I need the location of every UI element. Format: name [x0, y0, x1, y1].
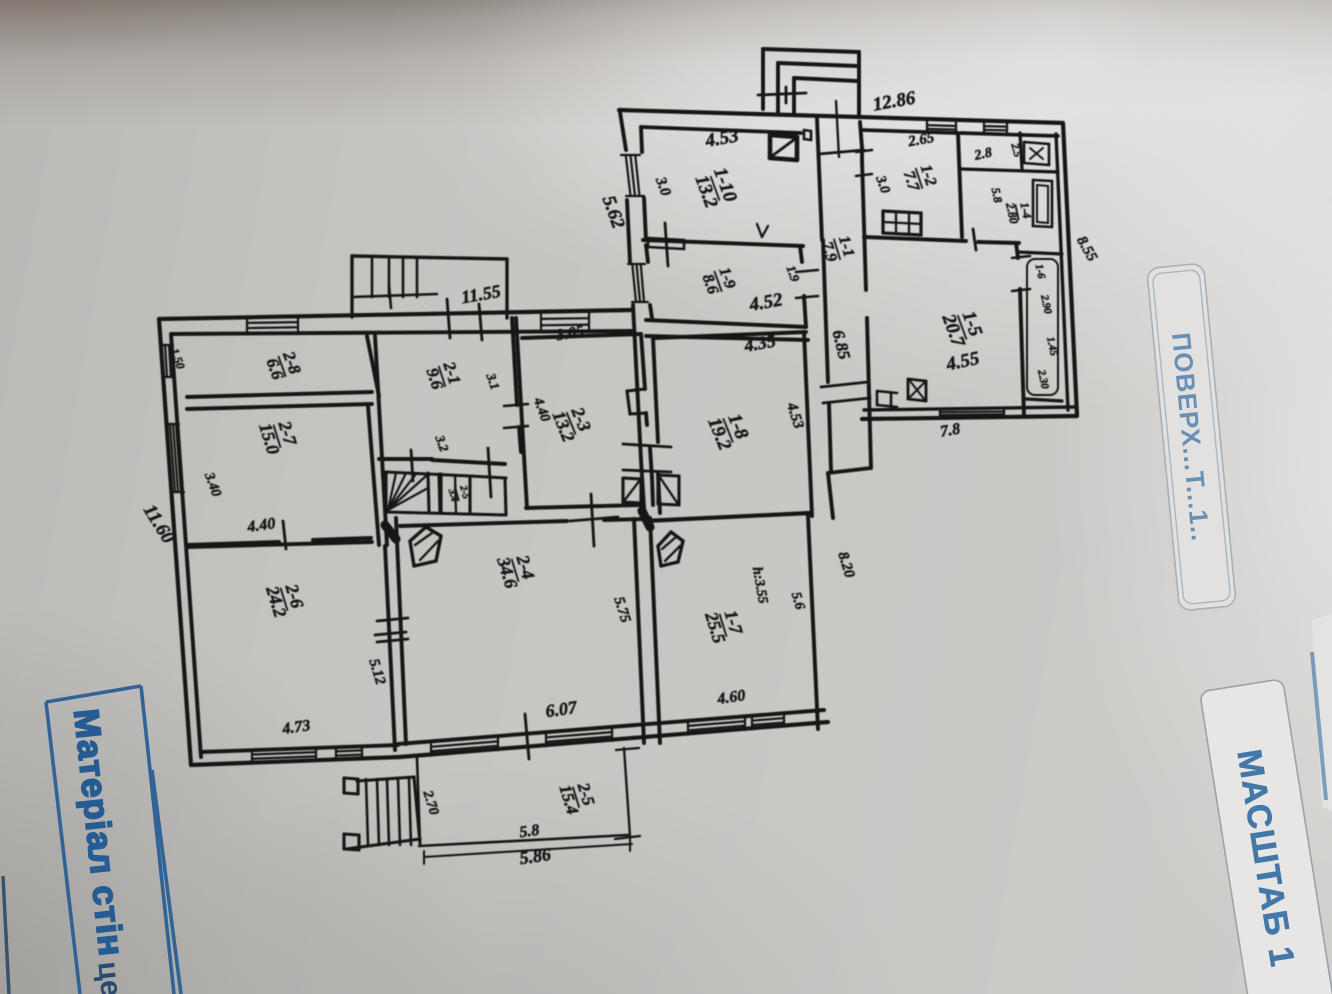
svg-text:4.40: 4.40: [530, 395, 553, 424]
svg-text:1.9: 1.9: [783, 263, 803, 284]
svg-text:2.30: 2.30: [1035, 368, 1051, 391]
svg-text:5.6: 5.6: [788, 590, 807, 611]
svg-text:4.53: 4.53: [783, 400, 807, 431]
svg-text:5.86: 5.86: [518, 844, 552, 868]
svg-text:2.65: 2.65: [906, 130, 936, 151]
svg-text:8.20: 8.20: [834, 550, 857, 580]
svg-text:4.53: 4.53: [703, 125, 740, 152]
svg-text:4.35: 4.35: [742, 331, 777, 356]
svg-text:1-6: 1-6: [1033, 263, 1048, 280]
svg-text:2.70: 2.70: [419, 788, 441, 817]
svg-text:5.75: 5.75: [610, 595, 633, 625]
svg-text:7.8: 7.8: [939, 420, 962, 440]
svg-text:Матеріал стін: Матеріал стін: [66, 707, 131, 958]
svg-text:3.40: 3.40: [201, 470, 224, 499]
svg-text:5.12: 5.12: [365, 657, 388, 687]
svg-text:4.60: 4.60: [715, 687, 746, 708]
svg-text:5.8: 5.8: [989, 186, 1006, 204]
svg-text:2.8: 2.8: [972, 145, 993, 164]
svg-text:4.55: 4.55: [943, 348, 981, 376]
svg-text:3.05: 3.05: [554, 323, 586, 345]
svg-text:6.07: 6.07: [544, 697, 579, 721]
svg-text:5.8: 5.8: [518, 822, 540, 842]
svg-text:5.62: 5.62: [598, 193, 629, 232]
svg-text:h:3.55: h:3.55: [749, 566, 770, 605]
svg-text:4.52: 4.52: [747, 289, 785, 316]
svg-text:4.73: 4.73: [280, 717, 311, 738]
svg-text:3.0: 3.0: [872, 173, 892, 196]
svg-text:12.86: 12.86: [871, 87, 917, 115]
svg-text:це: це: [91, 960, 127, 994]
svg-text:6.85: 6.85: [829, 328, 855, 362]
svg-text:11.55: 11.55: [460, 281, 502, 308]
svg-text:2.90: 2.90: [1038, 293, 1054, 316]
svg-text:3.0: 3.0: [652, 174, 674, 199]
svg-text:3.2: 3.2: [432, 432, 452, 454]
svg-text:8.55: 8.55: [1073, 234, 1100, 265]
svg-text:4.40: 4.40: [245, 515, 276, 536]
svg-text:3.1: 3.1: [483, 370, 503, 391]
